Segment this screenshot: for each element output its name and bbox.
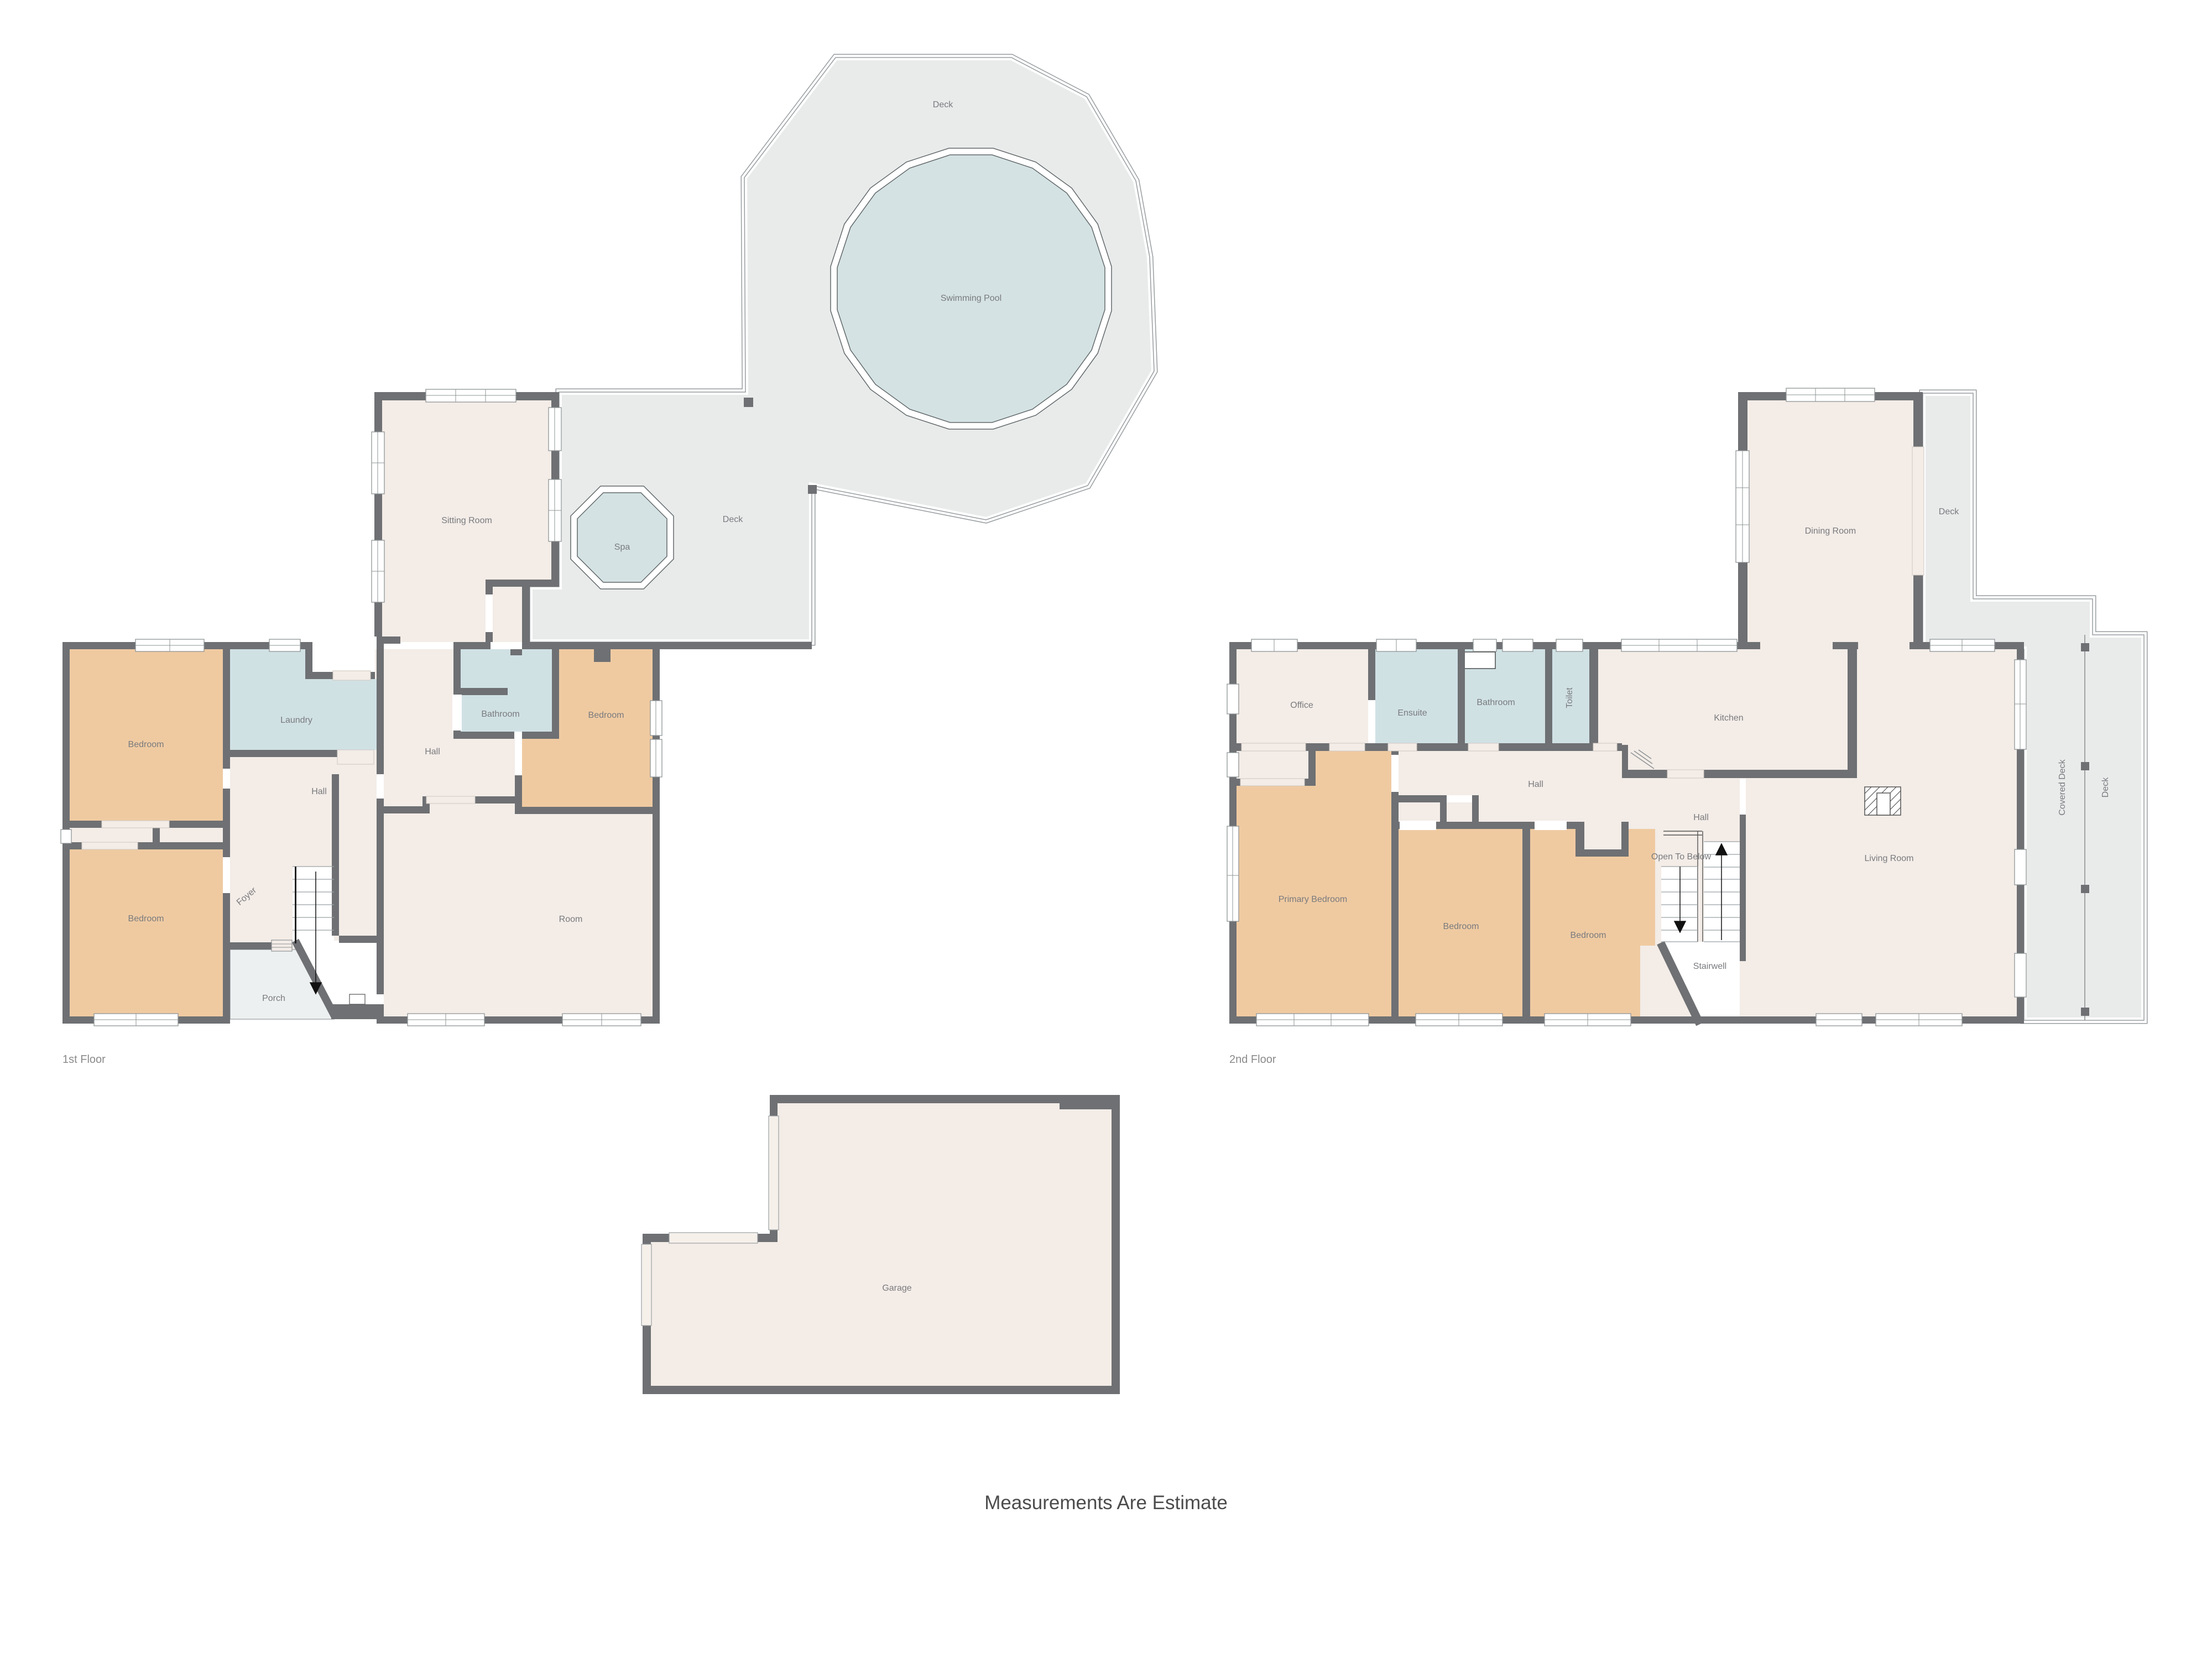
svg-text:Bathroom: Bathroom	[1477, 698, 1515, 707]
svg-text:Office: Office	[1290, 701, 1313, 710]
svg-text:2nd Floor: 2nd Floor	[1229, 1053, 1276, 1066]
svg-text:Living Room: Living Room	[1865, 854, 1914, 863]
svg-text:Hall: Hall	[425, 747, 440, 757]
svg-text:Room: Room	[559, 915, 583, 924]
svg-text:Open To Below: Open To Below	[1651, 852, 1712, 862]
svg-text:Spa: Spa	[614, 542, 630, 552]
svg-text:Bedroom: Bedroom	[1443, 922, 1479, 931]
svg-text:Deck: Deck	[1939, 507, 1959, 517]
svg-text:Bedroom: Bedroom	[588, 711, 624, 720]
svg-text:Kitchen: Kitchen	[1714, 713, 1743, 723]
svg-text:Garage: Garage	[882, 1284, 911, 1293]
svg-text:Porch: Porch	[262, 994, 285, 1003]
svg-text:Primary Bedroom: Primary Bedroom	[1279, 895, 1347, 904]
svg-text:Bedroom: Bedroom	[128, 914, 164, 924]
svg-text:Measurements Are Estimate: Measurements Are Estimate	[984, 1492, 1228, 1514]
svg-text:Bedroom: Bedroom	[1571, 931, 1606, 940]
svg-text:Deck: Deck	[2101, 777, 2110, 797]
svg-text:Toilet: Toilet	[1565, 687, 1574, 708]
svg-text:1st Floor: 1st Floor	[62, 1053, 106, 1066]
svg-text:Stairwell: Stairwell	[1693, 962, 1726, 971]
svg-text:Ensuite: Ensuite	[1397, 708, 1427, 718]
svg-text:Bathroom: Bathroom	[481, 709, 519, 719]
svg-text:Deck: Deck	[723, 515, 743, 524]
svg-text:Swimming Pool: Swimming Pool	[941, 294, 1001, 303]
svg-text:Laundry: Laundry	[280, 716, 312, 725]
svg-text:Covered Deck: Covered Deck	[2058, 759, 2067, 815]
svg-text:Hall: Hall	[311, 787, 327, 796]
svg-text:Hall: Hall	[1693, 813, 1709, 822]
svg-text:Deck: Deck	[933, 100, 953, 109]
svg-text:Dining Room: Dining Room	[1805, 526, 1856, 536]
svg-text:Bedroom: Bedroom	[128, 740, 164, 749]
svg-text:Hall: Hall	[1528, 780, 1543, 789]
svg-text:Sitting Room: Sitting Room	[441, 516, 492, 525]
